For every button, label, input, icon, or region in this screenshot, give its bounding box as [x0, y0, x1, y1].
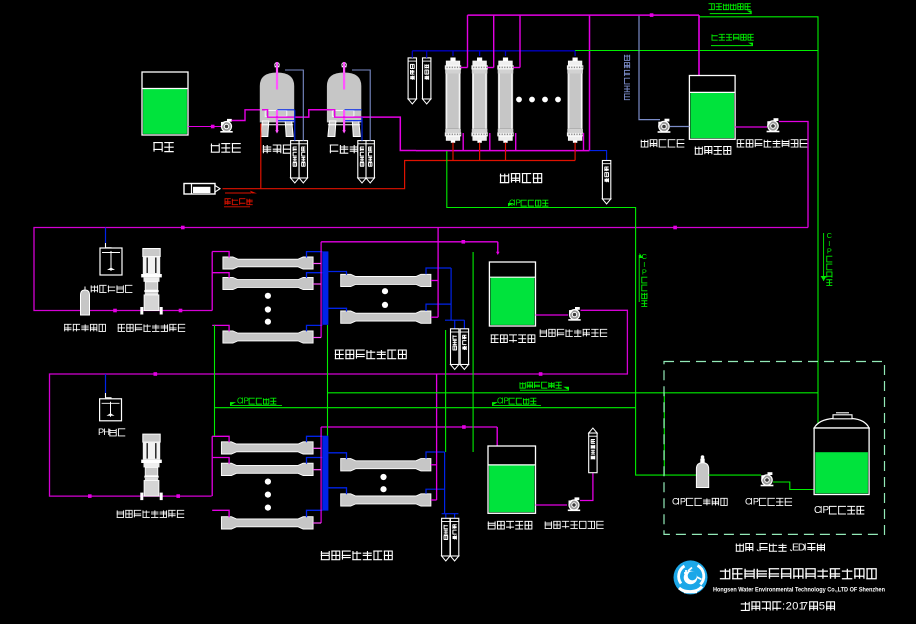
svg-text:7: 7 [802, 601, 808, 613]
svg-text:P: P [504, 397, 509, 406]
svg-text:2: 2 [786, 601, 792, 613]
svg-text:I: I [804, 543, 807, 554]
svg-text:P: P [244, 397, 249, 406]
svg-text:P: P [642, 268, 647, 277]
svg-text:P: P [753, 497, 759, 507]
svg-text:P: P [823, 505, 830, 516]
svg-text:P: P [680, 497, 686, 507]
svg-text:P: P [827, 247, 832, 256]
svg-text:H: H [103, 427, 110, 437]
svg-text:0: 0 [792, 601, 798, 613]
svg-text:Hongsen Water Environmental Te: Hongsen Water Environmental Technology C… [713, 587, 885, 594]
svg-text:5: 5 [819, 601, 825, 613]
svg-text:P: P [516, 199, 521, 208]
